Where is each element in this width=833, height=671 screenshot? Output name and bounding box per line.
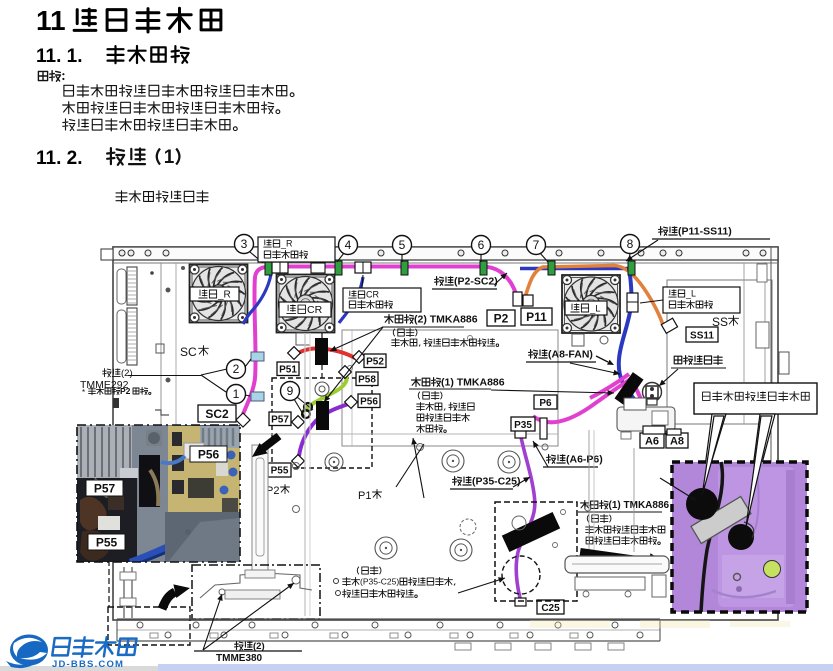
svg-text:A8: A8 bbox=[670, 436, 684, 448]
svg-text:(A6-P6): (A6-P6) bbox=[566, 454, 603, 466]
svg-text:C25: C25 bbox=[541, 603, 560, 614]
svg-text:1: 1 bbox=[233, 387, 240, 401]
svg-text:3: 3 bbox=[241, 237, 248, 251]
svg-text:SC: SC bbox=[180, 345, 197, 359]
svg-text:SC2: SC2 bbox=[205, 407, 229, 421]
svg-text:_R: _R bbox=[217, 290, 231, 301]
svg-text:(1) TMKA886: (1) TMKA886 bbox=[441, 377, 505, 389]
svg-text:P55: P55 bbox=[271, 466, 289, 477]
svg-text:9: 9 bbox=[287, 384, 294, 398]
svg-text:CR: CR bbox=[307, 304, 323, 316]
svg-text:(A8-FAN): (A8-FAN) bbox=[548, 349, 593, 361]
svg-text:_R: _R bbox=[280, 239, 293, 249]
svg-text:(2) TMKA886: (2) TMKA886 bbox=[414, 314, 478, 326]
svg-text:(P11-SS11): (P11-SS11) bbox=[678, 226, 732, 238]
svg-text:P51: P51 bbox=[279, 364, 297, 375]
svg-text:P58: P58 bbox=[358, 374, 376, 385]
svg-text:P55: P55 bbox=[96, 535, 118, 549]
svg-text:_L: _L bbox=[685, 289, 696, 299]
svg-text:11. 1.: 11. 1. bbox=[36, 46, 83, 67]
svg-text:*: * bbox=[82, 388, 85, 397]
svg-text:P1: P1 bbox=[358, 490, 371, 502]
svg-text:P6: P6 bbox=[539, 398, 552, 409]
svg-text:5: 5 bbox=[399, 238, 406, 252]
svg-text:SS11: SS11 bbox=[690, 330, 714, 341]
svg-text:P2: P2 bbox=[494, 311, 509, 325]
svg-text:6: 6 bbox=[478, 238, 485, 252]
svg-text:(P2-SC2): (P2-SC2) bbox=[454, 276, 498, 288]
svg-text:11. 2.: 11. 2. bbox=[36, 148, 83, 169]
svg-text:A6: A6 bbox=[645, 436, 659, 448]
svg-text:8: 8 bbox=[627, 237, 634, 251]
svg-text:P56: P56 bbox=[198, 447, 220, 461]
svg-text:7: 7 bbox=[533, 238, 540, 252]
svg-text:P35: P35 bbox=[514, 420, 532, 431]
svg-text:(P35-C25): (P35-C25) bbox=[472, 476, 520, 488]
svg-text:TMME380: TMME380 bbox=[216, 653, 263, 664]
svg-text:P2: P2 bbox=[120, 386, 131, 396]
svg-text:P52: P52 bbox=[366, 356, 384, 367]
svg-text:1: 1 bbox=[164, 147, 175, 168]
svg-text:_L: _L bbox=[589, 304, 601, 315]
svg-text:(P35-C25): (P35-C25) bbox=[360, 577, 399, 587]
svg-text:(2): (2) bbox=[121, 368, 133, 379]
svg-text:P57: P57 bbox=[94, 481, 116, 495]
svg-text:11: 11 bbox=[36, 5, 66, 36]
svg-text:P57: P57 bbox=[271, 414, 289, 425]
svg-text:JD-BBS.COM: JD-BBS.COM bbox=[52, 659, 124, 670]
svg-text:P11: P11 bbox=[526, 310, 547, 324]
svg-text:CR: CR bbox=[366, 290, 379, 300]
svg-text:P56: P56 bbox=[360, 396, 378, 407]
svg-text:4: 4 bbox=[345, 238, 352, 252]
svg-text:2: 2 bbox=[233, 362, 240, 376]
svg-text:(1) TMKA886: (1) TMKA886 bbox=[609, 500, 670, 511]
